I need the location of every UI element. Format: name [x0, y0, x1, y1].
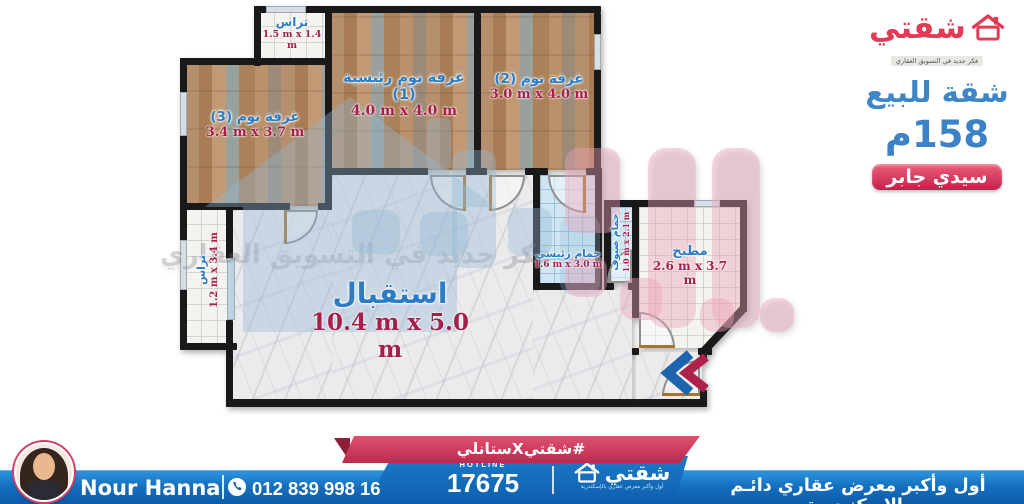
- separator: [222, 475, 224, 499]
- listing-area: 158م: [856, 113, 1018, 156]
- wall: [325, 6, 601, 13]
- footer-house-icon: [574, 461, 600, 485]
- hotline-number: 17675: [428, 468, 538, 499]
- listing-title: شقة للبيع: [856, 75, 1018, 109]
- footer-logo-tagline: أول وأكبر معرض عقاري بالإسكندرية: [566, 484, 678, 490]
- room-dims: 1.5 m x 1.4 m: [256, 30, 328, 52]
- brand-tagline: فكر جديد في التسويق العقاري: [891, 56, 983, 66]
- agent-name: Nour Hanna: [80, 476, 220, 500]
- window: [180, 92, 187, 136]
- room-name: استقبال: [295, 278, 485, 310]
- wall: [226, 399, 707, 407]
- hotline-panel: HOTLINE 17675 شقتي أول وأكبر معرض عقاري …: [366, 456, 688, 504]
- room-dims: 3.0 m x 4.0 m: [484, 88, 594, 103]
- watermark-shape: [420, 212, 468, 256]
- room-label-bedroom-3: غرفة نوم (3) 3.4 m x 3.7 m: [192, 110, 318, 140]
- room-label-terrace-top: تراس 1.5 m x 1.4 m: [256, 16, 328, 52]
- room-name: حمام رئيسي: [528, 248, 608, 260]
- room-name: تراس: [196, 224, 209, 316]
- entry-arrow-icon: [656, 350, 712, 396]
- watermark-shape: [648, 148, 696, 328]
- room-name: غرفة نوم رئيسية (1): [338, 70, 470, 103]
- brand-logo: شقتي: [856, 10, 1018, 46]
- wall: [632, 348, 639, 355]
- room-label-kitchen: مطبخ 2.6 m x 3.7 m: [648, 245, 732, 288]
- watermark-shape: [352, 210, 400, 254]
- room-dims: 3.4 m x 3.7 m: [192, 126, 318, 141]
- footer-logo: شقتي أول وأكبر معرض عقاري بالإسكندرية: [566, 460, 678, 490]
- room-label-bedroom-2: غرفة نوم (2) 3.0 m x 4.0 m: [484, 72, 594, 102]
- room-label-bedroom-1: غرفة نوم رئيسية (1) 4.0 m x 4.0 m: [338, 70, 470, 119]
- agent-avatar: [14, 442, 74, 502]
- window: [594, 34, 601, 70]
- door-leaf: [639, 345, 675, 348]
- floor-plan: فكر جديد في التسويق العقاري: [0, 0, 860, 430]
- room-name: تراس: [256, 16, 328, 30]
- footer-tagline: أول وأكبر معرض عقاري دائـم بالإسكنـدرية: [700, 476, 1016, 504]
- watermark-shape: [700, 298, 734, 332]
- room-name: غرفة نوم (3): [192, 110, 318, 126]
- phone-icon: [228, 478, 246, 496]
- room-dims: 1.0 m x 2.1 m: [622, 207, 631, 277]
- room-label-reception: استقبال 10.4 m x 5.0 m: [295, 278, 485, 363]
- wall: [180, 58, 332, 65]
- window: [266, 6, 306, 13]
- info-panel: شقتي فكر جديد في التسويق العقاري شقة للب…: [856, 0, 1018, 200]
- room-dims: 1.2 m x 3.4 m: [209, 224, 221, 316]
- wall: [180, 343, 237, 350]
- location-badge: سيدي جابر: [872, 164, 1001, 190]
- footer-logo-text: شقتي: [605, 461, 671, 485]
- room-reception-floor: [533, 290, 632, 401]
- watermark-shape: [760, 298, 794, 332]
- room-label-bath-main: حمام رئيسي 1.6 m x 3.0 m: [528, 248, 608, 270]
- hashtag-ribbon: #شقتيXستانلي: [342, 436, 700, 463]
- room-label-terrace-left: تراس 1.2 m x 3.4 m: [196, 224, 220, 316]
- avatar-body: [28, 480, 60, 500]
- brand-logo-text: شقتي: [869, 10, 966, 46]
- room-name: مطبخ: [648, 245, 732, 260]
- room-dims: 10.4 m x 5.0 m: [295, 310, 485, 363]
- agent-phone: 012 839 998 16: [252, 478, 381, 500]
- separator: [552, 466, 554, 494]
- room-name: غرفة نوم (2): [484, 72, 594, 88]
- avatar-face: [33, 453, 55, 480]
- brand-house-icon: [971, 13, 1005, 43]
- room-dims: 2.6 m x 3.7 m: [648, 260, 732, 288]
- page: فكر جديد في التسويق العقاري: [0, 0, 1024, 504]
- room-dims: 4.0 m x 4.0 m: [338, 103, 470, 119]
- room-label-bath-guest: حمام ضيوف 1.0 m x 2.1 m: [611, 207, 631, 277]
- room-dims: 1.6 m x 3.0 m: [528, 260, 608, 270]
